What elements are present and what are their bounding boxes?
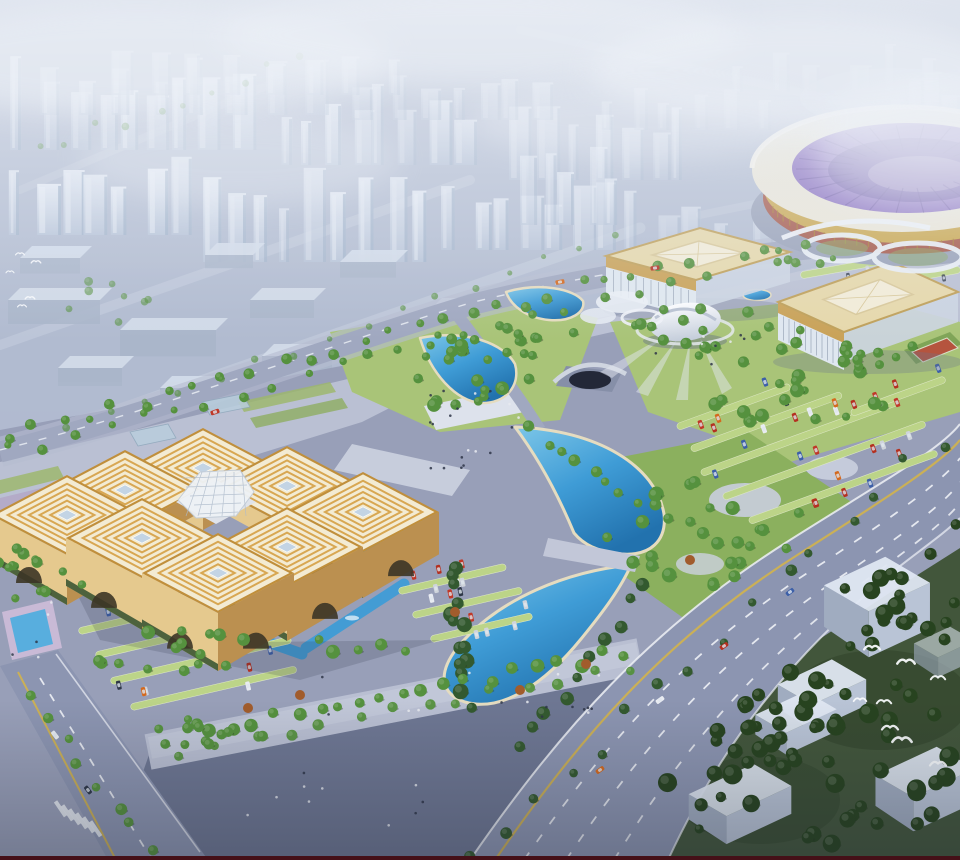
- person: [462, 464, 465, 467]
- person: [429, 394, 432, 397]
- tree: [251, 356, 258, 363]
- person: [431, 423, 434, 426]
- tree: [875, 360, 884, 369]
- tree: [426, 341, 434, 349]
- tree: [188, 382, 196, 390]
- tree: [218, 376, 225, 383]
- tree: [78, 580, 86, 588]
- person: [517, 416, 520, 419]
- person: [557, 673, 560, 676]
- person: [655, 352, 658, 355]
- person: [443, 467, 446, 470]
- person: [508, 403, 511, 406]
- person: [47, 613, 50, 616]
- red-accent-tree: [685, 555, 695, 565]
- tree: [140, 409, 148, 417]
- person: [714, 344, 717, 347]
- tree: [171, 406, 178, 413]
- person: [460, 466, 463, 469]
- person: [434, 421, 437, 424]
- rendering-stage: [0, 0, 960, 860]
- red-accent-tree: [581, 659, 591, 669]
- person: [710, 363, 713, 366]
- person: [37, 656, 40, 659]
- tree: [165, 387, 173, 395]
- tree: [898, 454, 907, 463]
- tree: [393, 346, 401, 354]
- tree: [483, 355, 492, 364]
- tree: [267, 384, 276, 393]
- tree: [142, 399, 148, 405]
- red-accent-tree: [295, 690, 305, 700]
- person: [429, 421, 432, 424]
- bottom-vignette: [0, 700, 960, 860]
- person: [489, 452, 492, 455]
- tree: [844, 350, 852, 358]
- tree: [804, 549, 812, 557]
- tree: [174, 390, 181, 397]
- tree: [194, 660, 203, 669]
- tree: [601, 477, 609, 485]
- person: [430, 467, 433, 470]
- tree: [62, 424, 70, 432]
- tree: [746, 418, 754, 426]
- tree: [108, 408, 115, 415]
- person: [474, 392, 477, 395]
- tree: [401, 647, 410, 656]
- tree: [695, 351, 704, 360]
- tree: [842, 413, 850, 421]
- tree: [4, 563, 12, 571]
- tree: [634, 499, 643, 508]
- tree: [339, 358, 347, 366]
- tree: [61, 415, 70, 424]
- person: [474, 450, 477, 453]
- tree: [59, 567, 67, 575]
- person: [11, 653, 14, 656]
- tree: [315, 635, 324, 644]
- person: [598, 674, 601, 677]
- tree: [306, 370, 313, 377]
- tree: [892, 353, 901, 362]
- person: [456, 407, 459, 410]
- person: [442, 390, 445, 393]
- person: [511, 426, 514, 429]
- person: [700, 343, 703, 346]
- person: [321, 676, 324, 679]
- person: [449, 414, 452, 417]
- person: [468, 672, 471, 675]
- tree: [11, 594, 19, 602]
- person: [461, 456, 464, 459]
- maroon-strip: [0, 856, 960, 860]
- tree: [626, 667, 634, 675]
- tree: [748, 598, 756, 606]
- red-accent-tree: [515, 685, 525, 695]
- red-accent-tree: [450, 607, 460, 617]
- person: [50, 601, 53, 604]
- tree: [422, 352, 430, 360]
- tree: [290, 353, 297, 360]
- tree: [86, 416, 93, 423]
- tree: [4, 441, 11, 448]
- tree: [109, 421, 116, 428]
- person: [35, 641, 38, 644]
- aerial-rendering: [0, 0, 960, 860]
- person: [729, 340, 732, 343]
- person: [489, 390, 492, 393]
- person: [467, 449, 470, 452]
